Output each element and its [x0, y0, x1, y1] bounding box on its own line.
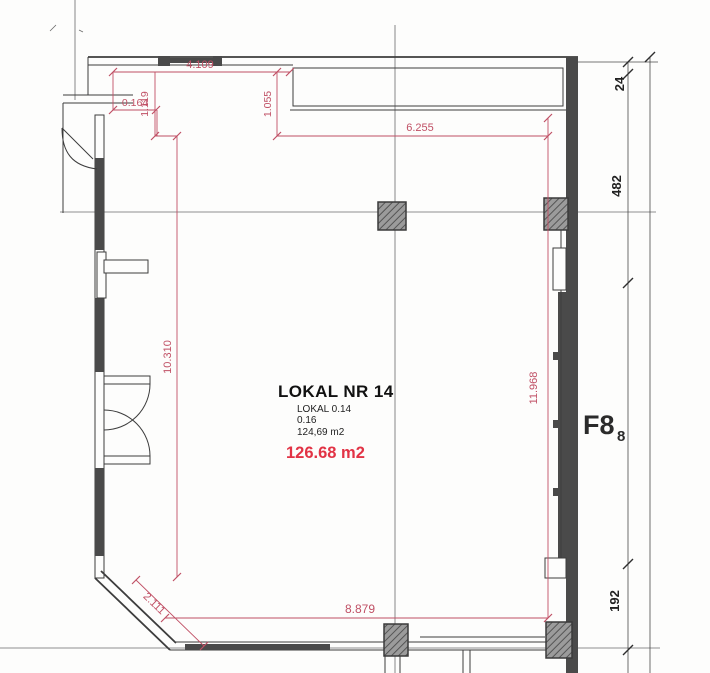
top-wall-pier-left: [158, 56, 170, 66]
axis-dim-label-middle: 482: [609, 175, 624, 197]
right-wall-main: [566, 57, 578, 673]
room-alt-area: 124,69 m2: [297, 427, 345, 438]
top-wall-lines: [63, 57, 566, 213]
top-window-recess: [293, 68, 563, 106]
door-leaf-bottom: [104, 456, 150, 464]
dim-label-right-height: 11.968: [528, 372, 540, 405]
red-dimension-labels: 4.109 0.164 1.119 1.055 6.255 10.310 11.…: [122, 59, 540, 617]
red-dimension-paths: [113, 72, 548, 646]
room-labels: LOKAL NR 14 LOKAL 0.14 0.16 124,69 m2 12…: [278, 382, 394, 462]
dim-label-top-right-recess: 1.055: [262, 91, 274, 117]
left-wall-segment-2: [95, 298, 104, 372]
red-dimension-lines: [109, 68, 552, 650]
axis-label-sub: 8: [617, 428, 625, 445]
right-wall-nub-1: [553, 352, 559, 360]
dim-label-bottom-width: 8.879: [345, 602, 375, 616]
dim-label-top-opening: 4.109: [186, 59, 214, 71]
room-title: LOKAL NR 14: [278, 382, 394, 401]
room-area: 126.68 m2: [286, 444, 365, 462]
left-wall-segment-3: [95, 468, 104, 556]
room-alt-number: 0.16: [297, 415, 317, 426]
bottom-wall-lines: [170, 637, 578, 673]
dim-label-top-left-recess: 1.119: [139, 91, 151, 117]
entrance-door-leaf-and-swing: [62, 128, 97, 169]
room-alt-ref: LOKAL 0.14: [297, 404, 352, 415]
dim-label-top-width: 6.255: [406, 122, 434, 134]
red-dimension-ticks: [109, 68, 552, 650]
axis-label-f8: F8 8: [583, 410, 625, 445]
floor-plan-drawing: 4.109 0.164 1.119 1.055 6.255 10.310 11.…: [0, 0, 710, 673]
column-bottom-right: [546, 622, 572, 658]
axis-label-main: F8: [583, 410, 615, 440]
axis-dim-label-bottom: 192: [607, 590, 622, 612]
axis-dim-label-top: 24: [612, 76, 627, 91]
columns: [378, 198, 572, 658]
door-swing-arcs: [104, 384, 150, 456]
door-leaf-top: [104, 376, 150, 384]
wall-stub-vertical: [97, 252, 106, 298]
left-wall-segment-1: [95, 158, 104, 250]
column-bottom-center: [384, 624, 408, 656]
axis-dimension-lines: [578, 52, 658, 673]
entrance-door: [62, 128, 97, 169]
right-wall-nub-3: [553, 488, 559, 496]
right-wall-inner-strip: [558, 292, 566, 558]
walls: [63, 56, 578, 673]
double-door: [104, 376, 150, 464]
wall-stub-horizontal: [104, 260, 148, 273]
axis-dimension-labels: 24 482 192: [607, 76, 627, 612]
right-wall-notch-top: [553, 248, 566, 290]
bottom-window-band: [185, 644, 330, 650]
floor-plan-page: 4.109 0.164 1.119 1.055 6.255 10.310 11.…: [0, 0, 710, 673]
right-wall-nub-2: [553, 420, 559, 428]
dim-label-left-height: 10.310: [162, 340, 174, 374]
axis-dimension-paths: [578, 57, 658, 673]
column-top-center: [378, 202, 406, 230]
